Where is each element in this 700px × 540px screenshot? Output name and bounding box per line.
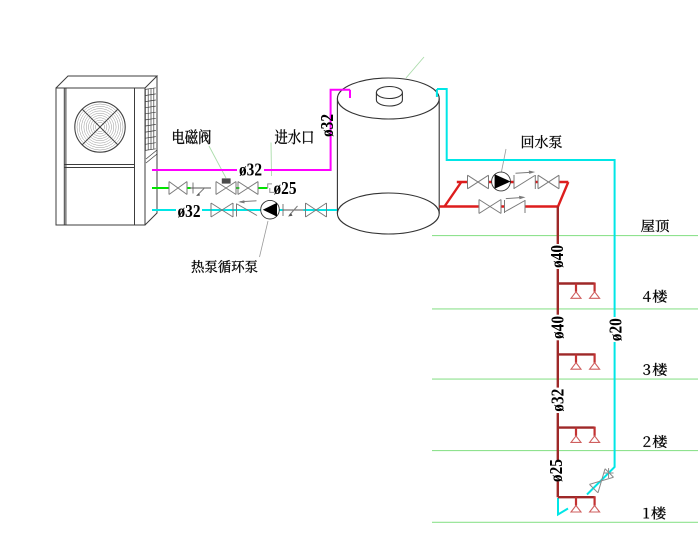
svg-text:ø32: ø32 bbox=[178, 201, 201, 221]
svg-text:ø32: ø32 bbox=[548, 389, 568, 412]
svg-text:ø25: ø25 bbox=[546, 459, 566, 482]
svg-text:ø40: ø40 bbox=[547, 245, 567, 268]
svg-text:ø32: ø32 bbox=[317, 114, 337, 137]
svg-text:ø25: ø25 bbox=[274, 178, 297, 198]
svg-text:ø32: ø32 bbox=[239, 160, 262, 180]
svg-text:ø20: ø20 bbox=[606, 318, 626, 341]
svg-text:ø40: ø40 bbox=[548, 316, 568, 339]
